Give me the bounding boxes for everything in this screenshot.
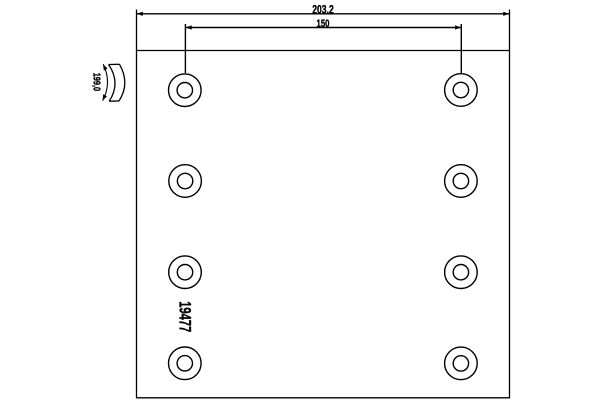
- svg-text:199,0: 199,0: [90, 73, 101, 92]
- svg-text:19477: 19477: [175, 301, 193, 332]
- svg-text:150: 150: [317, 18, 330, 30]
- svg-text:203.2: 203.2: [312, 4, 334, 16]
